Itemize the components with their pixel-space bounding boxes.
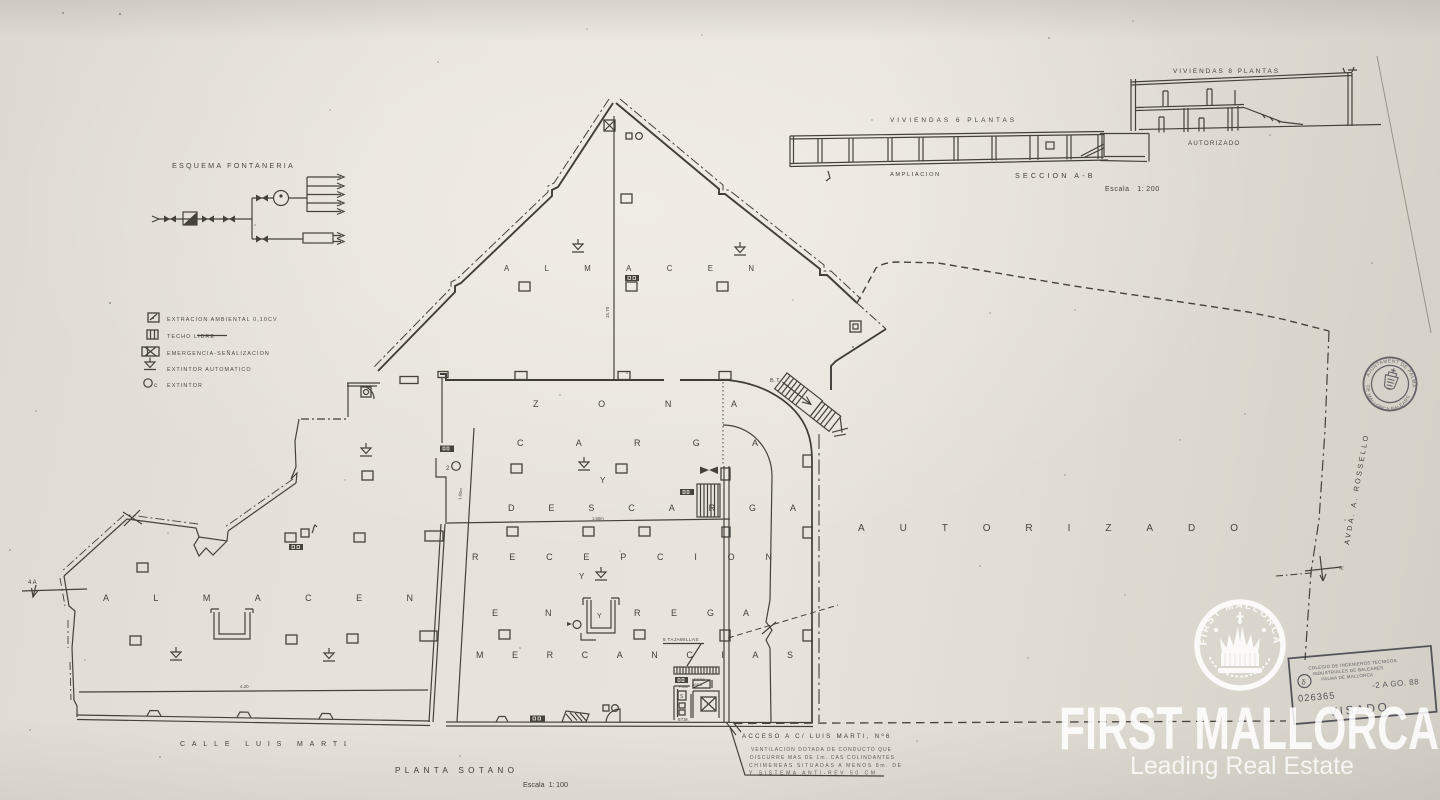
svg-text:ACCESO A C/ LUIS MARTI, Nº: ACCESO A C/ LUIS MARTI, Nº6 bbox=[742, 733, 890, 740]
svg-text:CARGA: CARGA bbox=[517, 438, 758, 448]
svg-text:Y: Y bbox=[597, 613, 602, 620]
svg-text:EMERGENCIA-SEÑALIZACION: EMERGENCIA-SEÑALIZACION bbox=[167, 350, 270, 357]
svg-text:-2 A GO. 88: -2 A GO. 88 bbox=[1372, 677, 1420, 690]
svg-text:MERCANCIAS: MERCANCIAS bbox=[476, 650, 793, 660]
svg-text:5 TAJAMILLAS: 5 TAJAMILLAS bbox=[663, 637, 699, 642]
svg-text:SECCION A-B: SECCION A-B bbox=[1015, 171, 1094, 180]
svg-text:VIVIENDAS 8 PLANTAS: VIVIENDAS 8 PLANTAS bbox=[1173, 68, 1279, 75]
svg-text:S: S bbox=[680, 694, 684, 700]
svg-text:N: N bbox=[545, 608, 552, 618]
svg-text:AVDA. A. ROSSELLO: AVDA. A. ROSSELLO bbox=[1342, 433, 1370, 545]
svg-text:G: G bbox=[707, 608, 714, 618]
svg-text:PLANTA SOTANO: PLANTA SOTANO bbox=[395, 766, 514, 775]
svg-text:ESQUEMA FONTANERIA: ESQUEMA FONTANERIA bbox=[172, 161, 295, 170]
svg-text:Leading Real Estate: Leading Real Estate bbox=[1130, 752, 1354, 780]
svg-text:2: 2 bbox=[446, 466, 450, 472]
svg-text:4 A: 4 A bbox=[28, 580, 37, 586]
svg-text:ET.M.: ET.M. bbox=[678, 717, 689, 722]
svg-text:Y: Y bbox=[579, 572, 585, 581]
svg-text:CALLE LUIS MARTI: CALLE LUIS MARTI bbox=[180, 741, 346, 748]
svg-text:1.60m: 1.60m bbox=[592, 516, 604, 521]
svg-text:Escala 1: 200: Escala 1: 200 bbox=[1105, 186, 1160, 193]
svg-text:RECEPCION: RECEPCION bbox=[472, 552, 772, 562]
svg-text:B.T.: B.T. bbox=[770, 378, 781, 384]
svg-text:E: E bbox=[671, 608, 677, 618]
svg-text:A: A bbox=[743, 608, 749, 618]
svg-text:DE MALLORCA BALEARS: DE MALLORCA BALEARS bbox=[1359, 384, 1412, 418]
svg-text:ZONA: ZONA bbox=[533, 399, 737, 409]
svg-text:EXTRACION AMBIENTAL 0,10CV: EXTRACION AMBIENTAL 0,10CV bbox=[167, 317, 278, 323]
svg-text:Y: Y bbox=[600, 476, 606, 485]
svg-text:ALMACEN: ALMACEN bbox=[504, 264, 754, 273]
svg-text:AUTORIZADO: AUTORIZADO bbox=[1188, 140, 1240, 147]
svg-text:DESCARGA: DESCARGA bbox=[508, 503, 796, 513]
svg-text:AUTORIZADO: AUTORIZADO bbox=[858, 523, 1238, 534]
svg-text:R: R bbox=[634, 608, 641, 618]
svg-text:Escala 1: 100: Escala 1: 100 bbox=[523, 780, 568, 789]
svg-text:E: E bbox=[492, 608, 498, 618]
svg-text:15.70: 15.70 bbox=[605, 306, 610, 318]
svg-text:VIVIENDAS 6 PLANTAS: VIVIENDAS 6 PLANTAS bbox=[890, 117, 1015, 124]
svg-text:R: R bbox=[1339, 565, 1346, 570]
svg-text:AMPLIACION: AMPLIACION bbox=[890, 172, 940, 178]
svg-text:EXTINTOR: EXTINTOR bbox=[167, 383, 203, 389]
svg-text:4.20: 4.20 bbox=[240, 684, 249, 689]
svg-text:δ: δ bbox=[1301, 677, 1306, 686]
svg-text:CHIMENEAS SITUADAS A MENOS: CHIMENEAS SITUADAS A MENOS 8m. DE bbox=[749, 763, 902, 769]
svg-text:EXTINTOR AUTOMATICO: EXTINTOR AUTOMATICO bbox=[167, 367, 252, 373]
svg-text:DISCURRE MAS DE 1m. CAS COLI: DISCURRE MAS DE 1m. CAS COLINDANTES bbox=[750, 755, 895, 761]
svg-text:c: c bbox=[154, 382, 158, 389]
svg-text:1.60m: 1.60m bbox=[457, 487, 463, 500]
svg-text:VENTILACION DOTADA DE CONDUC: VENTILACION DOTADA DE CONDUCTO QUE bbox=[751, 747, 892, 753]
svg-text:ALMACEN: ALMACEN bbox=[103, 593, 413, 603]
